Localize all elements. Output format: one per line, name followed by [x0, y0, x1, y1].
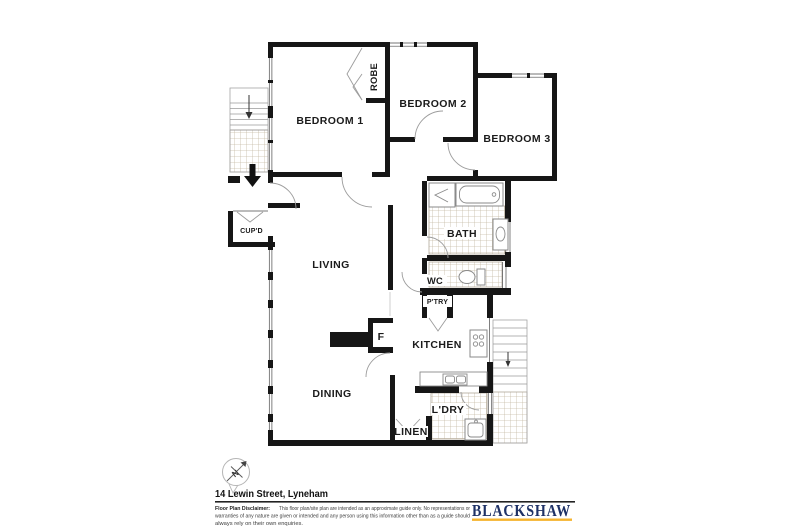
footer: 14 Lewin Street, Lyneham Floor Plan Disc…	[215, 488, 575, 527]
room-label-bedroom3: BEDROOM 3	[483, 133, 550, 145]
porch-tiles	[230, 130, 268, 172]
disclaimer-line-3: always rely on their own enquiries.	[215, 521, 303, 527]
bathtub	[456, 183, 503, 206]
toilet	[459, 269, 485, 285]
patio-tiles	[493, 392, 527, 443]
disclaimer-line-1: This floor plan/site plan are intended a…	[279, 506, 470, 512]
disclaimer-line-2: warranties of any nature are given or in…	[215, 514, 470, 520]
room-label-living: LIVING	[312, 259, 349, 271]
robe-bifold	[347, 48, 362, 100]
disclaimer-title: Floor Plan Disclaimer:	[215, 506, 270, 512]
steps-down-arrow	[246, 112, 253, 119]
brand-logo: BLACKSHAW	[472, 501, 571, 520]
room-label-bath: BATH	[447, 228, 477, 240]
pantry-bifold	[429, 318, 447, 331]
room-label-cupboard: CUP'D	[240, 227, 263, 235]
brand-underline	[472, 519, 572, 521]
stove	[470, 330, 487, 357]
floor-plan-page: BEDROOM 1 BEDROOM 2 BEDROOM 3 ROBE BATH …	[0, 0, 790, 527]
room-label-wc: WC	[427, 276, 443, 286]
room-label-robe: ROBE	[369, 63, 379, 91]
rear-steps-arrow	[506, 361, 511, 367]
room-label-dining: DINING	[312, 388, 351, 400]
room-label-bedroom1: BEDROOM 1	[296, 115, 363, 127]
kitchen-counter	[420, 372, 487, 386]
shower	[429, 183, 455, 207]
room-label-fridge: F	[378, 331, 385, 343]
fridge-space	[330, 332, 368, 347]
vanity-basin	[493, 219, 508, 250]
room-label-bedroom2: BEDROOM 2	[399, 98, 466, 110]
property-address: 14 Lewin Street, Lyneham	[215, 488, 328, 500]
laundry-tub	[465, 419, 486, 440]
cupboard-bifold	[237, 212, 263, 222]
room-label-laundry: L'DRY	[432, 404, 465, 416]
room-label-linen: LINEN	[394, 426, 428, 438]
room-label-pantry: P'TRY	[427, 298, 448, 306]
room-label-kitchen: KITCHEN	[412, 339, 461, 351]
floor-plan-drawing: BEDROOM 1 BEDROOM 2 BEDROOM 3 ROBE BATH …	[0, 0, 790, 527]
